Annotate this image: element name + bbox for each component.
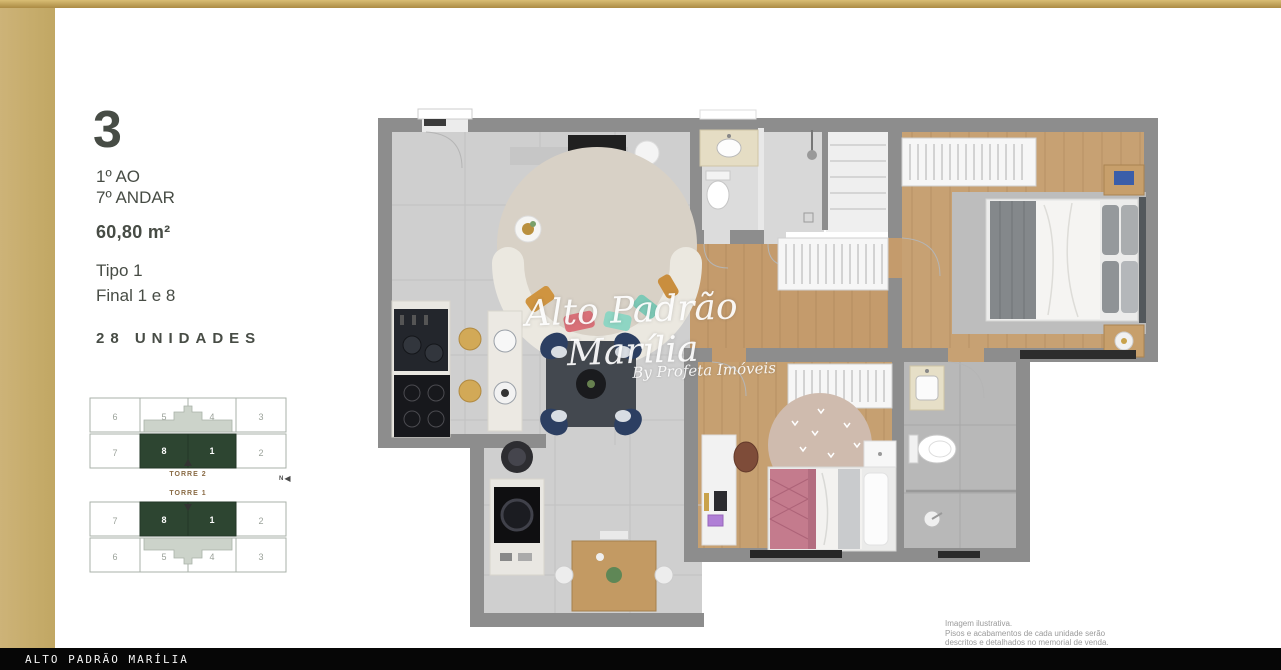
disclaimer-line: Imagem ilustrativa. [945, 619, 1109, 629]
svg-text:6: 6 [112, 552, 117, 562]
door-mat [938, 551, 980, 558]
disclaimer-line: Pisos e acabamentos de cada unidade serã… [945, 629, 1109, 639]
stool [459, 380, 481, 402]
toilet-bowl [918, 435, 956, 463]
cooktop [394, 375, 450, 437]
svg-text:3: 3 [258, 552, 263, 562]
toilet-tank [909, 435, 918, 463]
svg-text:7: 7 [112, 516, 117, 526]
toilet-bowl [707, 181, 729, 209]
svg-text:1: 1 [209, 515, 214, 525]
svg-text:5: 5 [161, 412, 166, 422]
tower-keyplan-torre2: 6 5 4 3 7 8 1 2 [88, 396, 288, 475]
svg-text:2: 2 [258, 516, 263, 526]
gold-top-band [0, 0, 1281, 8]
footer-bar: ALTO PADRÃO MARÍLIA [0, 648, 1281, 670]
svg-text:8: 8 [161, 515, 166, 525]
compass-north-label: N [279, 476, 283, 482]
desk [702, 435, 736, 545]
tower-label-torre2: TORRE 2 [88, 471, 288, 478]
chair [655, 566, 673, 584]
window-sill [750, 550, 842, 558]
svg-text:5: 5 [161, 552, 166, 562]
disclaimer-line: descritos e detalhados no memorial de ve… [945, 638, 1109, 648]
floor-range-line2: 7º ANDAR [96, 187, 175, 208]
shower-head [807, 150, 817, 160]
window-sill [1020, 350, 1136, 359]
finals-label: Final 1 e 8 [96, 283, 175, 308]
headboard [1139, 197, 1146, 323]
area-label: 60,80 m² [96, 222, 170, 243]
desk-chair [734, 442, 758, 472]
pillow [864, 473, 888, 545]
master-bedroom [952, 165, 1146, 359]
gold-side-stripe [0, 0, 55, 670]
tower-keyplan-torre1: 7 8 1 2 6 5 4 3 [88, 500, 288, 579]
svg-text:7: 7 [112, 448, 117, 458]
type-label: Tipo 1 [96, 258, 175, 283]
chair [555, 566, 573, 584]
toilet-tank [706, 171, 730, 180]
floor-range-line1: 1º AO [96, 166, 175, 187]
sink [916, 376, 938, 400]
tower-label-torre1: TORRE 1 [88, 490, 288, 497]
north-compass: N ◀ [279, 474, 291, 483]
floorplan-poster: 3 1º AO 7º ANDAR 60,80 m² Tipo 1 Final 1… [0, 0, 1281, 670]
compass-arrow-icon: ◀ [284, 474, 290, 483]
footer-brand-text: ALTO PADRÃO MARÍLIA [25, 653, 189, 666]
plan-number: 3 [93, 100, 122, 160]
units-count-label: 28 UNIDADES [96, 330, 261, 347]
floor-range: 1º AO 7º ANDAR [96, 166, 175, 208]
svg-text:6: 6 [112, 412, 117, 422]
svg-text:2: 2 [258, 448, 263, 458]
svg-text:4: 4 [209, 412, 214, 422]
svg-text:8: 8 [161, 446, 166, 456]
disclaimer: Imagem ilustrativa. Pisos e acabamentos … [945, 619, 1109, 648]
sink [717, 139, 741, 157]
svg-text:3: 3 [258, 412, 263, 422]
svg-text:1: 1 [209, 446, 214, 456]
bed-throw [990, 201, 1036, 319]
type-block: Tipo 1 Final 1 e 8 [96, 258, 175, 308]
svg-text:4: 4 [209, 552, 214, 562]
